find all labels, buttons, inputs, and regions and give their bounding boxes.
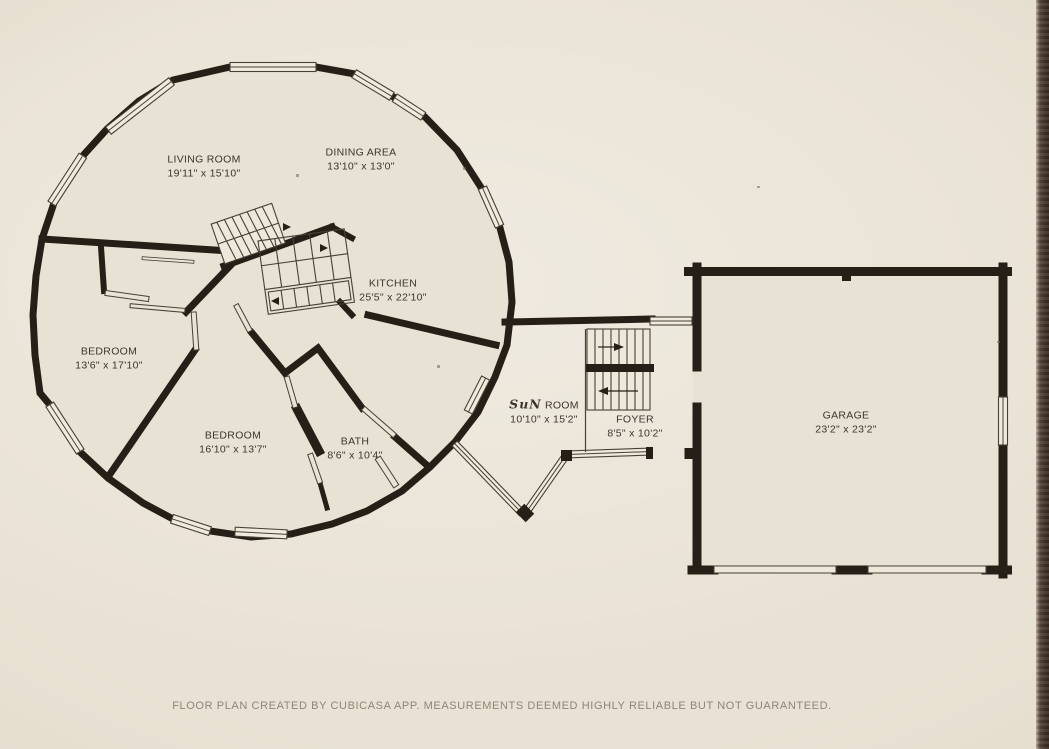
room-name: BATH — [327, 436, 382, 450]
photo-edge-strip — [1036, 0, 1049, 749]
room-name: GARAGE — [815, 410, 877, 424]
room-name: LIVING ROOM — [167, 154, 240, 168]
handwritten-word: SuN — [509, 397, 542, 412]
label-living-room: LIVING ROOM 19'11" x 15'10" — [167, 154, 240, 181]
label-sun-room: SuN ROOM 10'10" x 15'2" — [509, 398, 579, 427]
floor-plan-photo: { "rooms": { "living_room": { "label": "… — [0, 0, 1049, 749]
room-dims: 13'6" x 17'10" — [75, 359, 143, 373]
room-name: DINING AREA — [326, 147, 397, 161]
room-dims: 23'2" x 23'2" — [815, 423, 877, 437]
room-dims: 16'10" x 13'7" — [199, 443, 267, 457]
room-dims: 8'5" x 10'2" — [607, 427, 662, 441]
sunroom-windows — [452, 441, 653, 522]
disclaimer-text: FLOOR PLAN CREATED BY CUBICASA APP. MEAS… — [172, 700, 832, 712]
floor-plan-drawing — [0, 0, 1049, 749]
label-kitchen: KITCHEN 25'5" x 22'10" — [359, 278, 427, 305]
room-dims: 25'5" x 22'10" — [359, 291, 427, 305]
label-bedroom-bottom: BEDROOM 16'10" x 13'7" — [199, 430, 267, 457]
room-name: FOYER — [607, 414, 662, 428]
label-bath: BATH 8'6" x 10'4" — [327, 436, 382, 463]
room-dims: 10'10" x 15'2" — [509, 413, 579, 427]
room-name: BEDROOM — [75, 346, 143, 360]
label-garage: GARAGE 23'2" x 23'2" — [815, 410, 877, 437]
room-name: SuN ROOM — [509, 398, 579, 414]
room-name: KITCHEN — [359, 278, 427, 292]
room-dims: 8'6" x 10'4" — [327, 449, 382, 463]
garage-window — [999, 397, 1008, 445]
round-house-outline — [33, 67, 512, 537]
room-dims: 19'11" x 15'10" — [167, 167, 240, 181]
label-foyer: FOYER 8'5" x 10'2" — [607, 414, 662, 441]
label-dining-area: DINING AREA 13'10" x 13'0" — [326, 147, 397, 174]
hallway-window — [650, 317, 692, 325]
room-dims: 13'10" x 13'0" — [326, 160, 397, 174]
label-bedroom-left: BEDROOM 13'6" x 17'10" — [75, 346, 143, 373]
room-name: BEDROOM — [199, 430, 267, 444]
